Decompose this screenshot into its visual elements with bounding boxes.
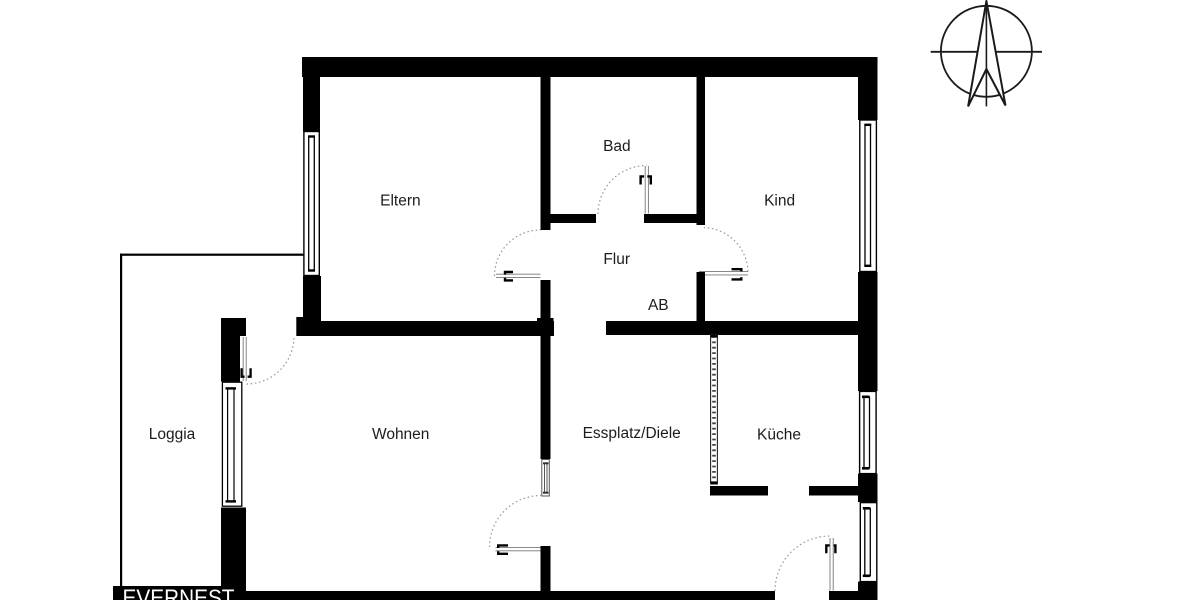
svg-text:Flur: Flur <box>603 251 630 268</box>
svg-text:Eltern: Eltern <box>380 193 421 210</box>
svg-text:Küche: Küche <box>757 426 801 443</box>
svg-text:Kind: Kind <box>764 193 795 210</box>
svg-text:AB: AB <box>648 297 669 314</box>
svg-text:Loggia: Loggia <box>149 426 196 443</box>
svg-text:EVERNEST: EVERNEST <box>123 585 235 600</box>
svg-text:Essplatz/Diele: Essplatz/Diele <box>583 425 681 442</box>
svg-text:Bad: Bad <box>603 138 631 155</box>
svg-text:Wohnen: Wohnen <box>372 426 429 443</box>
